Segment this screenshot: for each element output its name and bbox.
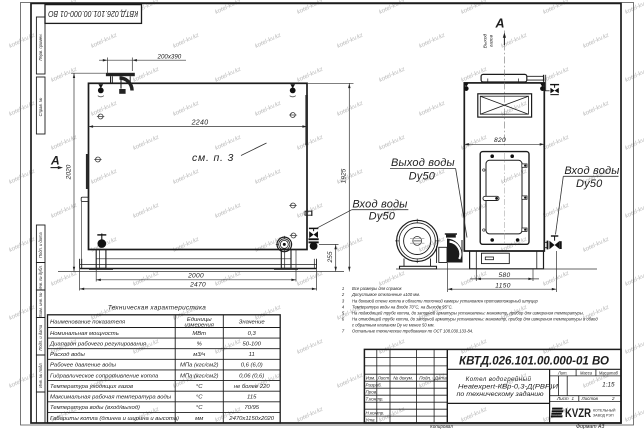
svg-text:Справ. №: Справ. № [38, 97, 43, 116]
svg-text:Dy50: Dy50 [409, 171, 436, 183]
svg-text:50-100: 50-100 [243, 342, 262, 348]
svg-text:№ докум.: № докум. [393, 376, 413, 381]
svg-text:°С: °С [196, 395, 203, 401]
svg-text:1925: 1925 [340, 168, 347, 183]
svg-text:ЗАВОД РЭП: ЗАВОД РЭП [593, 414, 614, 418]
svg-text:Техническая характеристика: Техническая характеристика [108, 304, 206, 311]
svg-text:Габариты котла (длинна и ширин: Габариты котла (длинна и ширина и высота… [50, 416, 179, 422]
svg-text:Масса: Масса [580, 370, 593, 375]
svg-text:Рабочее давление воды: Рабочее давление воды [50, 363, 117, 369]
svg-text:%: % [197, 342, 202, 348]
svg-text:Копировал: Копировал [430, 424, 453, 429]
svg-text:Н.контр.: Н.контр. [366, 411, 385, 416]
svg-text:Остальные технические требован: Остальные технические требования по ОСТ … [352, 329, 473, 334]
svg-text:Температура воды (вход/выход): Температура воды (вход/выход) [50, 405, 140, 411]
svg-text:мм: мм [195, 416, 203, 422]
svg-text:Т.контр.: Т.контр. [366, 397, 384, 402]
svg-text:Лит.: Лит. [557, 370, 568, 375]
svg-text:Диапазон рабочего регулировани: Диапазон рабочего регулирования [49, 342, 147, 348]
svg-text:2470х1150х2020: 2470х1150х2020 [228, 416, 274, 422]
svg-text:Heatexpert-КВр-0,3-Д(РВР)И: Heatexpert-КВр-0,3-Д(РВР)И [458, 384, 559, 391]
svg-text:Перв. примен.: Перв. примен. [38, 33, 43, 60]
svg-text:Дата: Дата [434, 376, 447, 381]
svg-text:Утв.: Утв. [366, 418, 376, 423]
svg-text:KVZR: KVZR [565, 408, 592, 420]
svg-text:Температура уходящих газов: Температура уходящих газов [50, 384, 133, 390]
svg-text:Dy50: Dy50 [576, 178, 603, 190]
svg-text:с обратным клапаном Dy не мене: с обратным клапаном Dy не менее 50 мм. [352, 323, 435, 328]
svg-text:На отводящей трубе котла, до з: На отводящей трубе котла, до запорной ар… [352, 317, 598, 322]
svg-text:1: 1 [342, 286, 344, 291]
svg-text:115: 115 [247, 395, 257, 401]
svg-text:Номинальная мощность: Номинальная мощность [50, 331, 119, 337]
svg-text:МПа (кгс/см2): МПа (кгс/см2) [180, 363, 219, 369]
svg-text:см. п. 3: см. п. 3 [192, 152, 234, 164]
svg-text:2020: 2020 [66, 164, 73, 180]
svg-text:°С: °С [196, 405, 203, 411]
svg-text:Лист: Лист [556, 396, 569, 401]
svg-text:255: 255 [327, 251, 334, 263]
svg-text:Гидравлическое сопротивление к: Гидравлическое сопротивление котла [50, 373, 159, 379]
svg-text:°С: °С [196, 384, 203, 390]
svg-text:Котел водогрейный: Котел водогрейный [466, 376, 532, 383]
svg-text:Лист: Лист [377, 376, 390, 381]
svg-text:Вход воды: Вход воды [352, 198, 407, 210]
svg-text:по техническому заданию: по техническому заданию [457, 391, 544, 398]
svg-text:Все размеры для справок: Все размеры для справок [352, 286, 403, 291]
svg-text:На боковой стене котла в облас: На боковой стене котла в области топочно… [352, 298, 539, 303]
svg-text:А: А [495, 17, 505, 31]
svg-text:Значение: Значение [239, 320, 266, 326]
svg-text:Масштаб: Масштаб [599, 370, 619, 375]
svg-text:измерения: измерения [184, 322, 214, 328]
svg-text:Инв. № подл.: Инв. № подл. [38, 362, 43, 387]
svg-text:МВт: МВт [192, 331, 206, 337]
svg-text:200х390: 200х390 [157, 53, 182, 60]
svg-text:Подп.: Подп. [419, 376, 431, 381]
svg-text:КОТЕЛЬНЫЙ: КОТЕЛЬНЫЙ [593, 409, 616, 413]
svg-text:580: 580 [499, 272, 511, 279]
svg-text:м3/ч: м3/ч [193, 352, 205, 358]
svg-text:Формат А3: Формат А3 [576, 424, 604, 430]
svg-text:Листов: Листов [581, 396, 599, 401]
svg-text:1150: 1150 [495, 282, 510, 289]
svg-text:820: 820 [494, 137, 506, 144]
svg-text:11: 11 [249, 352, 255, 358]
svg-text:70/95: 70/95 [244, 405, 259, 411]
svg-text:газов: газов [489, 34, 494, 47]
svg-text:А: А [50, 154, 60, 168]
svg-text:Вход воды: Вход воды [564, 165, 619, 177]
svg-text:0,6 (6,0): 0,6 (6,0) [241, 363, 263, 369]
svg-text:Выход воды: Выход воды [391, 157, 455, 169]
svg-text:Инв. № дубл.: Инв. № дубл. [38, 265, 43, 290]
svg-text:Разраб.: Разраб. [366, 383, 382, 388]
svg-text:Dy50: Dy50 [369, 211, 396, 223]
svg-text:Пров.: Пров. [366, 390, 378, 395]
svg-text:Подп. и дата: Подп. и дата [38, 232, 43, 258]
svg-text:МПа (кгс/см2): МПа (кгс/см2) [180, 373, 219, 379]
svg-text:Допустимое отклонение ±100 мм.: Допустимое отклонение ±100 мм. [351, 292, 420, 297]
svg-text:КВТД.026.101.00.000-01 ВО: КВТД.026.101.00.000-01 ВО [459, 353, 609, 367]
svg-text:Максимальная рабочая температу: Максимальная рабочая температура воды [50, 395, 172, 401]
svg-text:1:15: 1:15 [602, 382, 615, 389]
svg-text:Температура воды на Входе 70°С: Температура воды на Входе 70°С, на Выход… [352, 304, 453, 309]
svg-text:0,06 (0,6): 0,06 (0,6) [239, 373, 264, 379]
svg-text:Расход воды: Расход воды [50, 352, 86, 358]
svg-text:Выход: Выход [482, 33, 488, 48]
svg-text:2: 2 [611, 396, 615, 401]
svg-text:Наименование показателя: Наименование показателя [50, 320, 126, 326]
svg-text:2000: 2000 [187, 273, 204, 280]
svg-text:КВТД.026.101.00.000-01 ВО: КВТД.026.101.00.000-01 ВО [48, 9, 138, 19]
svg-text:Подп. и дата: Подп. и дата [38, 324, 43, 350]
svg-text:Взам. инв. №: Взам. инв. № [38, 292, 43, 318]
svg-text:0,3: 0,3 [248, 331, 257, 337]
svg-text:не более 220: не более 220 [234, 384, 271, 390]
svg-text:Изм.: Изм. [366, 376, 376, 381]
svg-text:На подводящей трубе котла, до: На подводящей трубе котла, до запорной а… [352, 310, 584, 315]
svg-text:2470: 2470 [189, 282, 206, 289]
svg-text:2240: 2240 [191, 119, 209, 126]
